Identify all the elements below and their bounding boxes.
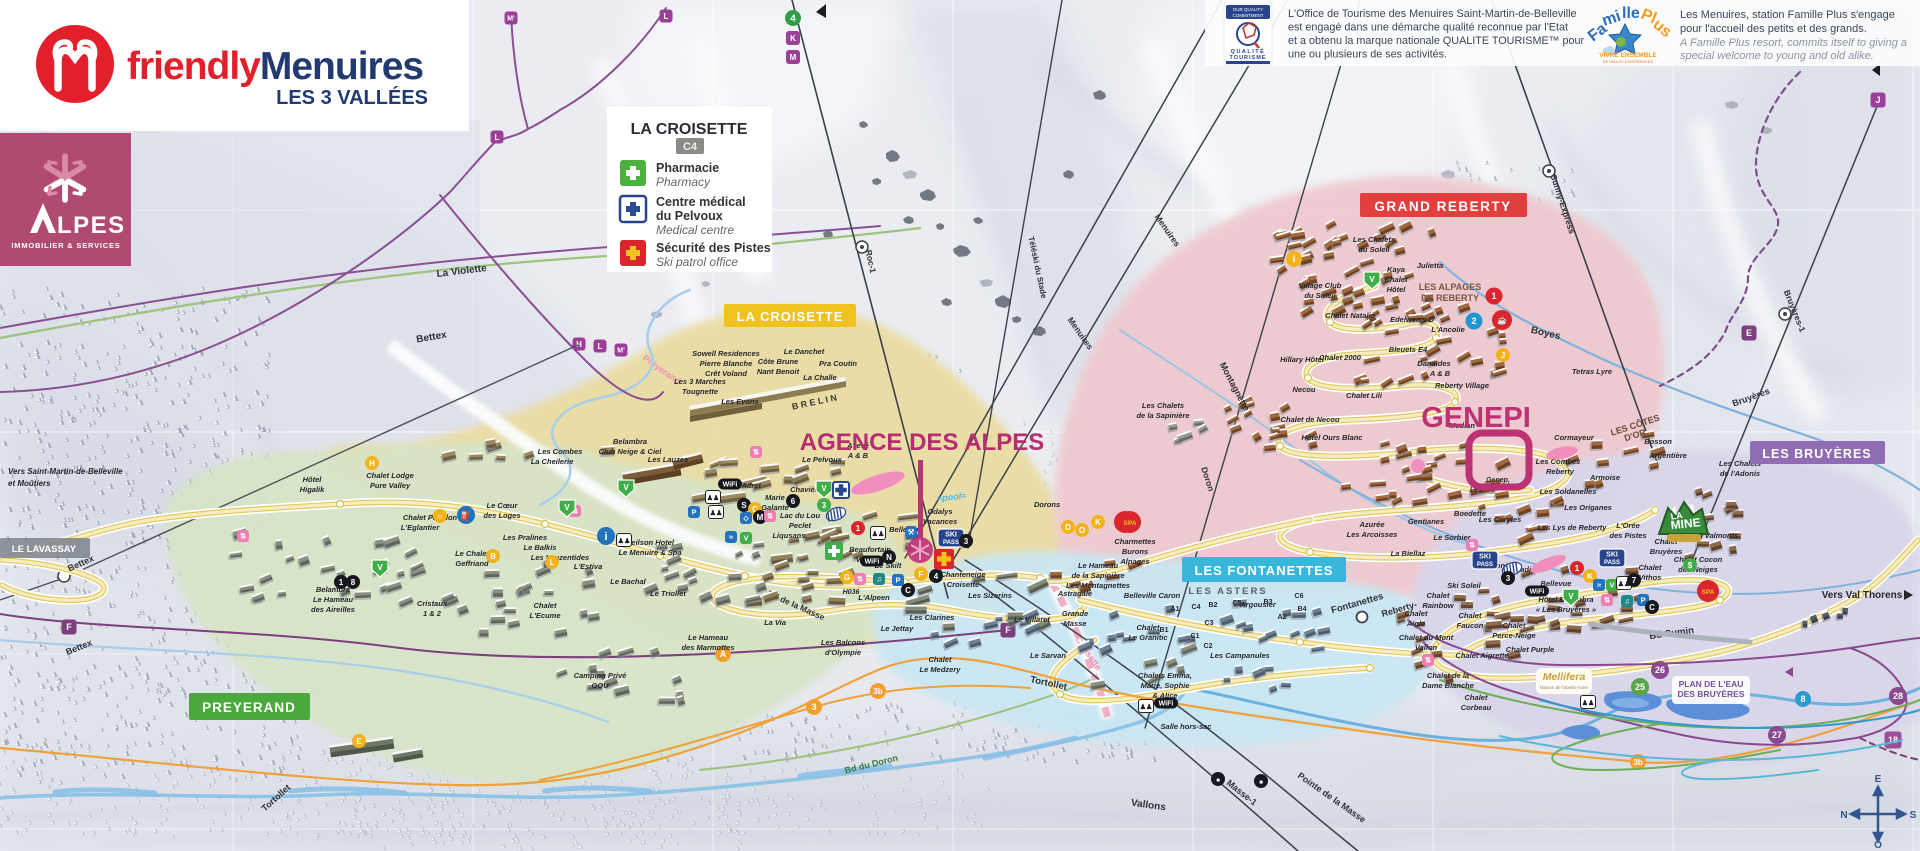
svg-text:25: 25 bbox=[1635, 682, 1645, 692]
svg-text:1: 1 bbox=[1575, 564, 1580, 573]
svg-text:Marie, Sophie: Marie, Sophie bbox=[1141, 681, 1190, 690]
svg-text:Argentière: Argentière bbox=[1648, 451, 1687, 460]
svg-text:2: 2 bbox=[1471, 316, 1476, 326]
svg-text:Côte Brune: Côte Brune bbox=[758, 357, 799, 366]
svg-text:VIVRE ENSEMBLE: VIVRE ENSEMBLE bbox=[1599, 52, 1657, 59]
svg-text:Astragale: Astragale bbox=[1057, 589, 1092, 598]
svg-text:26: 26 bbox=[1655, 665, 1665, 675]
svg-text:du Pelvoux: du Pelvoux bbox=[656, 209, 723, 223]
svg-text:⛽: ⛽ bbox=[460, 510, 471, 521]
svg-text:$: $ bbox=[1688, 561, 1693, 570]
svg-text:de la Sapinière: de la Sapinière bbox=[1071, 571, 1124, 580]
svg-text:Dorons: Dorons bbox=[1034, 500, 1060, 509]
svg-text:28: 28 bbox=[1893, 691, 1903, 701]
svg-text:Chalet Lodge: Chalet Lodge bbox=[366, 471, 414, 480]
svg-text:8: 8 bbox=[351, 578, 356, 587]
svg-text:et a obtenu la marque national: et a obtenu la marque nationale QUALITE … bbox=[1288, 35, 1584, 47]
svg-text:Chalet: Chalet bbox=[1503, 621, 1526, 630]
svg-text:Le Balkis: Le Balkis bbox=[523, 543, 556, 552]
svg-text:SPA: SPA bbox=[1702, 589, 1715, 596]
svg-text:Chalet: Chalet bbox=[1639, 563, 1662, 572]
svg-text:D: D bbox=[1065, 523, 1071, 532]
svg-text:Chalet Lili: Chalet Lili bbox=[1346, 391, 1383, 400]
svg-text:K: K bbox=[1587, 572, 1593, 581]
svg-text:Les Soldanelles: Les Soldanelles bbox=[1540, 487, 1597, 496]
svg-text:⇅: ⇅ bbox=[1469, 541, 1476, 550]
svg-text:DE MILLES EXPÉRIENCES: DE MILLES EXPÉRIENCES bbox=[1603, 59, 1654, 64]
svg-text:L: L bbox=[664, 12, 669, 21]
svg-text:P: P bbox=[895, 576, 900, 585]
svg-text:V: V bbox=[623, 483, 629, 492]
svg-text:C4: C4 bbox=[683, 141, 698, 153]
svg-text:Odalys: Odalys bbox=[927, 507, 952, 516]
svg-text:Kaya: Kaya bbox=[1387, 265, 1405, 274]
svg-text:Chalet: Chalet bbox=[1459, 611, 1482, 620]
svg-text:J: J bbox=[1501, 351, 1505, 360]
svg-text:♟♟: ♟♟ bbox=[1140, 703, 1153, 711]
svg-text:Azurée: Azurée bbox=[1358, 520, 1384, 529]
svg-text:○: ○ bbox=[438, 512, 443, 521]
svg-text:Chalet: Chalet bbox=[534, 601, 557, 610]
svg-text:Peclet: Peclet bbox=[789, 521, 812, 530]
svg-text:Chalet du Mont: Chalet du Mont bbox=[1399, 633, 1454, 642]
svg-text:La Via: La Via bbox=[764, 618, 786, 627]
svg-text:Les Origanes: Les Origanes bbox=[1564, 503, 1612, 512]
svg-text:♟♟: ♟♟ bbox=[618, 537, 631, 545]
svg-text:V: V bbox=[1609, 581, 1614, 590]
svg-text:Chalets Emma,: Chalets Emma, bbox=[1138, 671, 1192, 680]
svg-text:Le Granitic: Le Granitic bbox=[1128, 633, 1168, 642]
svg-text:Le Sorbier: Le Sorbier bbox=[1433, 533, 1471, 542]
svg-text:des Loges: des Loges bbox=[483, 511, 520, 520]
svg-text:PREYERAND: PREYERAND bbox=[202, 700, 296, 715]
svg-text:et Moûtiers: et Moûtiers bbox=[8, 479, 51, 488]
svg-text:A2: A2 bbox=[1278, 614, 1287, 621]
svg-text:F: F bbox=[919, 570, 924, 579]
svg-text:Chalet Cocon: Chalet Cocon bbox=[1674, 555, 1723, 564]
svg-text:de l'Adonis: de l'Adonis bbox=[1720, 469, 1760, 478]
svg-text:1 & 2: 1 & 2 bbox=[423, 609, 442, 618]
svg-text:⇅: ⇅ bbox=[1604, 596, 1611, 605]
svg-text:OUR QUALITY: OUR QUALITY bbox=[1233, 7, 1264, 12]
svg-text:Le Danchet: Le Danchet bbox=[784, 347, 825, 356]
svg-text:N: N bbox=[886, 553, 892, 562]
svg-text:L'Alpeen: L'Alpeen bbox=[858, 593, 890, 602]
svg-text:Marie: Marie bbox=[765, 493, 785, 502]
svg-text:Reberty Village: Reberty Village bbox=[1435, 381, 1489, 390]
svg-text:♫: ♫ bbox=[1624, 597, 1630, 606]
svg-text:Pra Coutin: Pra Coutin bbox=[819, 359, 857, 368]
svg-text:Le Sarvan: Le Sarvan bbox=[1030, 651, 1066, 660]
svg-text:⇅: ⇅ bbox=[753, 448, 760, 457]
svg-text:K: K bbox=[790, 34, 796, 43]
svg-text:E: E bbox=[1875, 774, 1882, 785]
svg-text:V: V bbox=[743, 534, 748, 543]
svg-text:Le Hameau: Le Hameau bbox=[313, 595, 354, 604]
svg-text:Higalik: Higalik bbox=[300, 485, 325, 494]
svg-text:LES 3 VALLÉES: LES 3 VALLÉES bbox=[276, 86, 428, 109]
svg-text:V: V bbox=[1568, 592, 1574, 601]
svg-text:SKI: SKI bbox=[1479, 554, 1491, 561]
svg-text:LES BRUYÈRES: LES BRUYÈRES bbox=[1762, 446, 1871, 461]
svg-text:Necou: Necou bbox=[1293, 385, 1316, 394]
svg-text:Vithos: Vithos bbox=[1639, 573, 1662, 582]
svg-text:H: H bbox=[369, 459, 375, 468]
svg-text:Chanteneige: Chanteneige bbox=[940, 570, 985, 579]
svg-text:F: F bbox=[66, 622, 72, 632]
svg-text:V: V bbox=[377, 563, 383, 572]
svg-text:♟♟: ♟♟ bbox=[872, 530, 885, 538]
svg-text:Tougnette: Tougnette bbox=[682, 387, 718, 396]
svg-text:1: 1 bbox=[1491, 291, 1496, 301]
svg-text:K: K bbox=[1095, 518, 1101, 527]
svg-text:LA CROISETTE: LA CROISETTE bbox=[631, 121, 748, 138]
svg-text:Gentianes: Gentianes bbox=[1408, 517, 1444, 526]
svg-text:des Pistes: des Pistes bbox=[1609, 531, 1646, 540]
svg-text:Lac du Lou: Lac du Lou bbox=[780, 511, 820, 520]
svg-text:Le Chalet: Le Chalet bbox=[455, 549, 489, 558]
svg-text:3: 3 bbox=[964, 537, 969, 546]
svg-text:3b: 3b bbox=[873, 687, 882, 696]
svg-text:pour l'accueil des petits et d: pour l'accueil des petits et des grands. bbox=[1680, 23, 1867, 35]
svg-text:IMMOBILIER & SERVICES: IMMOBILIER & SERVICES bbox=[11, 241, 120, 250]
svg-text:Chalet Purple: Chalet Purple bbox=[1506, 645, 1554, 654]
svg-text:Pharmacy: Pharmacy bbox=[656, 175, 711, 189]
svg-text:GENEPI: GENEPI bbox=[1421, 402, 1531, 434]
svg-text:L'Estiva: L'Estiva bbox=[574, 562, 603, 571]
svg-text:☕: ☕ bbox=[1497, 315, 1507, 325]
svg-text:M: M bbox=[757, 513, 764, 522]
svg-text:V: V bbox=[821, 484, 827, 493]
svg-text:Les Menuires, station Famille: Les Menuires, station Famille Plus s'eng… bbox=[1680, 9, 1895, 21]
svg-text:WiFi: WiFi bbox=[865, 559, 880, 566]
svg-text:Le Medzery: Le Medzery bbox=[920, 665, 962, 674]
svg-text:G: G bbox=[844, 573, 850, 582]
svg-text:C4: C4 bbox=[1192, 604, 1201, 611]
svg-text:≈: ≈ bbox=[729, 533, 733, 542]
svg-text:Les Campanules: Les Campanules bbox=[1210, 651, 1270, 660]
svg-text:LPES: LPES bbox=[57, 212, 126, 239]
svg-text:O: O bbox=[1874, 840, 1882, 851]
svg-text:C1: C1 bbox=[1191, 633, 1200, 640]
svg-text:Les Sizerins: Les Sizerins bbox=[968, 591, 1012, 600]
svg-text:C3: C3 bbox=[1205, 620, 1214, 627]
svg-text:Les Clarines: Les Clarines bbox=[910, 613, 955, 622]
svg-text:Les Balcons: Les Balcons bbox=[821, 638, 865, 647]
svg-text:i: i bbox=[604, 531, 607, 543]
svg-text:d'Olympie: d'Olympie bbox=[825, 648, 861, 657]
svg-text:Julietta: Julietta bbox=[1417, 261, 1443, 270]
svg-text:Le Hameau: Le Hameau bbox=[688, 633, 729, 642]
svg-text:friendlyMenuires: friendlyMenuires bbox=[127, 45, 423, 88]
svg-text:M': M' bbox=[507, 16, 515, 23]
svg-text:3: 3 bbox=[1506, 574, 1511, 583]
svg-text:Vers Val Thorens: Vers Val Thorens bbox=[1822, 590, 1903, 601]
svg-text:Alpages: Alpages bbox=[1119, 557, 1149, 566]
svg-text:Danaïdes: Danaïdes bbox=[1417, 359, 1450, 368]
svg-text:♟♟: ♟♟ bbox=[707, 494, 720, 502]
svg-text:⇅: ⇅ bbox=[1425, 656, 1432, 665]
svg-text:Vers Saint-Martin-de-Bellevill: Vers Saint-Martin-de-Belleville bbox=[8, 467, 123, 476]
svg-text:⚒: ⚒ bbox=[908, 528, 915, 537]
svg-text:Chalet de Necou: Chalet de Necou bbox=[1281, 415, 1340, 424]
svg-text:Chalet 2000: Chalet 2000 bbox=[1319, 353, 1362, 362]
svg-text:L: L bbox=[550, 558, 555, 567]
svg-text:Bosson: Bosson bbox=[1644, 437, 1672, 446]
svg-text:Medical centre: Medical centre bbox=[656, 223, 734, 237]
svg-text:Salle hors-sac: Salle hors-sac bbox=[1161, 722, 1213, 731]
svg-text:Grande: Grande bbox=[1062, 609, 1088, 618]
svg-text:est engagé dans une démarche q: est engagé dans une démarche qualité rec… bbox=[1288, 22, 1568, 34]
svg-text:Reberty: Reberty bbox=[1546, 467, 1575, 476]
svg-text:Le Bachal: Le Bachal bbox=[610, 577, 646, 586]
svg-text:L'Ancolie: L'Ancolie bbox=[1431, 325, 1465, 334]
svg-text:Les Chalets: Les Chalets bbox=[1353, 235, 1395, 244]
svg-text:V: V bbox=[564, 503, 570, 512]
svg-text:E: E bbox=[356, 737, 362, 746]
svg-text:WiFi: WiFi bbox=[1159, 701, 1174, 708]
svg-text:C5: C5 bbox=[1233, 600, 1242, 607]
svg-text:LA CROISETTE: LA CROISETTE bbox=[737, 309, 844, 324]
svg-text:QUALITÉ: QUALITÉ bbox=[1231, 47, 1266, 55]
svg-text:N: N bbox=[1840, 810, 1847, 821]
svg-text:Hôtel: Hôtel bbox=[303, 475, 323, 484]
svg-text:Belleville Caron: Belleville Caron bbox=[1124, 591, 1181, 600]
svg-text:L'Office de Tourisme des Menui: L'Office de Tourisme des Menuires Saint-… bbox=[1288, 8, 1577, 20]
svg-text:GRAND REBERTY: GRAND REBERTY bbox=[1374, 199, 1511, 214]
svg-text:PASS: PASS bbox=[1604, 560, 1620, 566]
svg-text:du Soleil: du Soleil bbox=[1358, 245, 1390, 254]
svg-text:Les Combes: Les Combes bbox=[538, 447, 583, 456]
svg-text:Le Pelvoux: Le Pelvoux bbox=[802, 455, 843, 464]
svg-text:A & B: A & B bbox=[1429, 369, 1451, 378]
svg-text:B1: B1 bbox=[1160, 627, 1169, 634]
svg-text:GOU: GOU bbox=[591, 681, 609, 690]
svg-text:La Challe: La Challe bbox=[803, 373, 836, 382]
svg-text:« Les Bruyères »: « Les Bruyères » bbox=[1536, 605, 1596, 614]
svg-text:Les Lauzentides: Les Lauzentides bbox=[531, 553, 589, 562]
svg-text:Hillary Hôtel: Hillary Hôtel bbox=[1280, 355, 1325, 364]
svg-text:Chalet: Chalet bbox=[1137, 623, 1160, 632]
svg-text:V: V bbox=[1369, 275, 1375, 284]
svg-text:Cristaux: Cristaux bbox=[417, 599, 448, 608]
svg-text:LES ALPAGES: LES ALPAGES bbox=[1419, 282, 1482, 292]
svg-text:LES FONTANETTES: LES FONTANETTES bbox=[1195, 563, 1334, 578]
svg-text:Edelweiss D: Edelweiss D bbox=[1390, 315, 1434, 324]
svg-text:Ski Soleil: Ski Soleil bbox=[1447, 581, 1481, 590]
svg-text:P: P bbox=[691, 508, 696, 517]
svg-text:Le Jettay: Le Jettay bbox=[881, 624, 914, 633]
svg-text:Chalet Natalia: Chalet Natalia bbox=[1325, 311, 1375, 320]
svg-text:Pierre Blanche: Pierre Blanche bbox=[700, 359, 753, 368]
svg-text:O: O bbox=[1079, 526, 1085, 535]
svg-text:Geffriand: Geffriand bbox=[455, 559, 489, 568]
svg-text:A1: A1 bbox=[1171, 606, 1180, 613]
svg-text:E: E bbox=[1746, 328, 1752, 338]
svg-text:7: 7 bbox=[1632, 576, 1637, 585]
svg-text:⬦: ⬦ bbox=[742, 514, 749, 523]
svg-text:une ou plusieurs de ses activi: une ou plusieurs de ses activités. bbox=[1288, 49, 1447, 61]
svg-text:C2: C2 bbox=[1204, 643, 1213, 650]
svg-text:Hôtel: Hôtel bbox=[1387, 285, 1407, 294]
svg-text:8: 8 bbox=[1800, 694, 1805, 704]
svg-text:PASS: PASS bbox=[943, 540, 959, 546]
svg-text:des Aireilles: des Aireilles bbox=[311, 605, 355, 614]
svg-text:Vallon: Vallon bbox=[1415, 643, 1438, 652]
svg-text:⇅: ⇅ bbox=[857, 575, 864, 584]
svg-text:S: S bbox=[1910, 810, 1917, 821]
svg-text:Liqusans.: Liqusans. bbox=[772, 531, 807, 540]
svg-text:Chalet Aigrette: Chalet Aigrette bbox=[1455, 651, 1508, 660]
svg-text:L'Ecume: L'Ecume bbox=[529, 611, 560, 620]
svg-text:lle: lle bbox=[1622, 5, 1640, 22]
svg-text:Sowell Residences: Sowell Residences bbox=[692, 349, 760, 358]
svg-text:H: H bbox=[576, 340, 582, 349]
svg-text:TOURISME: TOURISME bbox=[1230, 55, 1267, 61]
svg-text:Chalet de la: Chalet de la bbox=[1427, 671, 1469, 680]
svg-text:Le Menuire & Spa: Le Menuire & Spa bbox=[618, 548, 681, 557]
svg-text:Village Club: Village Club bbox=[1299, 281, 1342, 290]
svg-text:Masse: Masse bbox=[1064, 619, 1087, 628]
svg-text:Bleuets E4: Bleuets E4 bbox=[1389, 345, 1428, 354]
svg-text:Le Hameau: Le Hameau bbox=[1078, 561, 1119, 570]
svg-text:L: L bbox=[495, 133, 500, 142]
svg-text:AGENCE DES ALPES: AGENCE DES ALPES bbox=[800, 429, 1045, 456]
svg-text:Mellifera: Mellifera bbox=[1543, 671, 1586, 683]
svg-text:Perce-Neige: Perce-Neige bbox=[1492, 631, 1535, 640]
svg-text:Aigle: Aigle bbox=[1406, 619, 1425, 628]
svg-text:♫: ♫ bbox=[876, 575, 882, 584]
svg-text:♟♟: ♟♟ bbox=[1582, 699, 1595, 707]
svg-text:Burons: Burons bbox=[1122, 547, 1148, 556]
svg-text:Les Chalets: Les Chalets bbox=[1142, 401, 1184, 410]
svg-text:Belambra: Belambra bbox=[613, 437, 647, 446]
svg-text:J: J bbox=[1875, 95, 1880, 105]
svg-text:M': M' bbox=[617, 348, 625, 355]
svg-text:Nant Benoit: Nant Benoit bbox=[757, 367, 800, 376]
svg-text:Faucon: Faucon bbox=[1457, 621, 1484, 630]
svg-text:27: 27 bbox=[1772, 730, 1782, 740]
svg-text:Chalet: Chalet bbox=[1465, 693, 1488, 702]
svg-text:L'Orée: L'Orée bbox=[1616, 521, 1640, 530]
svg-text:C: C bbox=[905, 586, 911, 595]
svg-text:Maison de l'abeille noire: Maison de l'abeille noire bbox=[1540, 685, 1589, 690]
svg-text:Les 3 Marches: Les 3 Marches bbox=[674, 377, 726, 386]
svg-text:Pure Valley: Pure Valley bbox=[370, 481, 411, 490]
svg-text:Croisette: Croisette bbox=[947, 580, 980, 589]
svg-text:Sécurité des Pistes: Sécurité des Pistes bbox=[656, 241, 771, 255]
svg-text:Tetras Lyre: Tetras Lyre bbox=[1572, 367, 1612, 376]
svg-text:Dame Blanche: Dame Blanche bbox=[1422, 681, 1474, 690]
svg-text:PASS: PASS bbox=[1477, 562, 1493, 568]
svg-text:La Biellaz: La Biellaz bbox=[1391, 549, 1426, 558]
svg-text:H036: H036 bbox=[843, 589, 860, 596]
svg-text:B: B bbox=[490, 552, 496, 561]
svg-text:Les Arcoisses: Les Arcoisses bbox=[1347, 530, 1398, 539]
svg-text:DES BRUYÈRES: DES BRUYÈRES bbox=[1677, 689, 1744, 699]
svg-text:LES ASTERS: LES ASTERS bbox=[1188, 586, 1267, 597]
svg-text:SKI: SKI bbox=[945, 532, 957, 539]
svg-text:B2: B2 bbox=[1209, 602, 1218, 609]
svg-text:I: I bbox=[1293, 254, 1296, 264]
svg-text:Hôtel Ours Blanc: Hôtel Ours Blanc bbox=[1302, 433, 1364, 442]
svg-text:B4: B4 bbox=[1298, 606, 1307, 613]
svg-text:PLAN DE L'EAU: PLAN DE L'EAU bbox=[1679, 679, 1744, 689]
svg-text:Pharmacie: Pharmacie bbox=[656, 161, 719, 175]
svg-text:3: 3 bbox=[811, 702, 816, 712]
svg-text:DE REBERTY: DE REBERTY bbox=[1421, 293, 1479, 303]
svg-text:⇅: ⇅ bbox=[767, 512, 774, 521]
svg-text:6: 6 bbox=[791, 497, 796, 506]
svg-text:Les Lys de Reberty: Les Lys de Reberty bbox=[1538, 523, 1608, 532]
svg-text:B3: B3 bbox=[1264, 599, 1273, 606]
svg-text:Les Montagnettes: Les Montagnettes bbox=[1066, 581, 1130, 590]
svg-text:Chalet Papillon: Chalet Papillon bbox=[403, 513, 458, 522]
svg-text:■: ■ bbox=[1259, 780, 1263, 786]
svg-text:Chalet: Chalet bbox=[1427, 591, 1450, 600]
svg-text:≈: ≈ bbox=[1597, 581, 1601, 590]
svg-text:4: 4 bbox=[934, 572, 939, 581]
svg-text:♟♟: ♟♟ bbox=[710, 509, 723, 517]
svg-text:Le Villaret: Le Villaret bbox=[1014, 615, 1050, 624]
svg-text:La Cheilerie: La Cheilerie bbox=[531, 457, 574, 466]
svg-text:■: ■ bbox=[1216, 778, 1220, 784]
svg-text:Charmettes: Charmettes bbox=[1114, 537, 1155, 546]
svg-text:Camping Privé: Camping Privé bbox=[574, 671, 627, 680]
svg-text:WiFi: WiFi bbox=[1530, 589, 1545, 596]
svg-text:WiFi: WiFi bbox=[723, 482, 738, 489]
svg-text:LE LAVASSAY: LE LAVASSAY bbox=[12, 544, 77, 555]
svg-text:Les Coryles: Les Coryles bbox=[1479, 515, 1522, 524]
svg-text:1: 1 bbox=[856, 524, 861, 533]
svg-text:Le Triollet: Le Triollet bbox=[650, 589, 686, 598]
svg-text:Armoise: Armoise bbox=[1589, 473, 1620, 482]
svg-text:S: S bbox=[741, 501, 747, 510]
svg-text:4: 4 bbox=[790, 14, 796, 25]
svg-text:A Famille Plus resort, commits: A Famille Plus resort, commits itself to… bbox=[1679, 37, 1907, 49]
svg-text:special welcome to young and o: special welcome to young and old alike. bbox=[1680, 50, 1874, 62]
svg-text:Les Lauzes: Les Lauzes bbox=[648, 455, 689, 464]
svg-text:Neilson Hotel: Neilson Hotel bbox=[626, 538, 675, 547]
svg-text:de la Sapinière: de la Sapinière bbox=[1136, 411, 1189, 420]
svg-text:L: L bbox=[598, 342, 603, 351]
svg-text:Chalet: Chalet bbox=[1385, 275, 1408, 284]
svg-text:⇅: ⇅ bbox=[240, 532, 247, 541]
svg-text:des Marmottes: des Marmottes bbox=[681, 643, 734, 652]
svg-text:3b: 3b bbox=[1633, 758, 1642, 767]
svg-text:M: M bbox=[790, 53, 797, 62]
svg-text:Vacances: Vacances bbox=[923, 517, 957, 526]
svg-text:Ski patrol office: Ski patrol office bbox=[656, 255, 738, 269]
svg-text:Les Evons: Les Evons bbox=[721, 397, 759, 406]
svg-text:3: 3 bbox=[822, 501, 827, 510]
svg-text:Centre médical: Centre médical bbox=[656, 195, 746, 209]
svg-text:Cormayeur: Cormayeur bbox=[1554, 433, 1595, 442]
svg-text:C6: C6 bbox=[1295, 593, 1304, 600]
svg-text:Le Cœur: Le Cœur bbox=[487, 501, 519, 510]
svg-text:SPA: SPA bbox=[1124, 520, 1137, 527]
svg-text:Chalet: Chalet bbox=[929, 655, 952, 664]
svg-text:du Soleil: du Soleil bbox=[1304, 291, 1336, 300]
svg-text:COMMITMENT: COMMITMENT bbox=[1233, 13, 1264, 18]
svg-text:Les Pralines: Les Pralines bbox=[503, 533, 547, 542]
svg-text:1: 1 bbox=[339, 578, 344, 587]
svg-text:L'Eglantier: L'Eglantier bbox=[401, 523, 441, 532]
svg-text:Corbeau: Corbeau bbox=[1461, 703, 1492, 712]
svg-text:P: P bbox=[1640, 596, 1645, 605]
svg-text:SKI: SKI bbox=[1606, 552, 1618, 559]
svg-text:C: C bbox=[1649, 603, 1655, 612]
